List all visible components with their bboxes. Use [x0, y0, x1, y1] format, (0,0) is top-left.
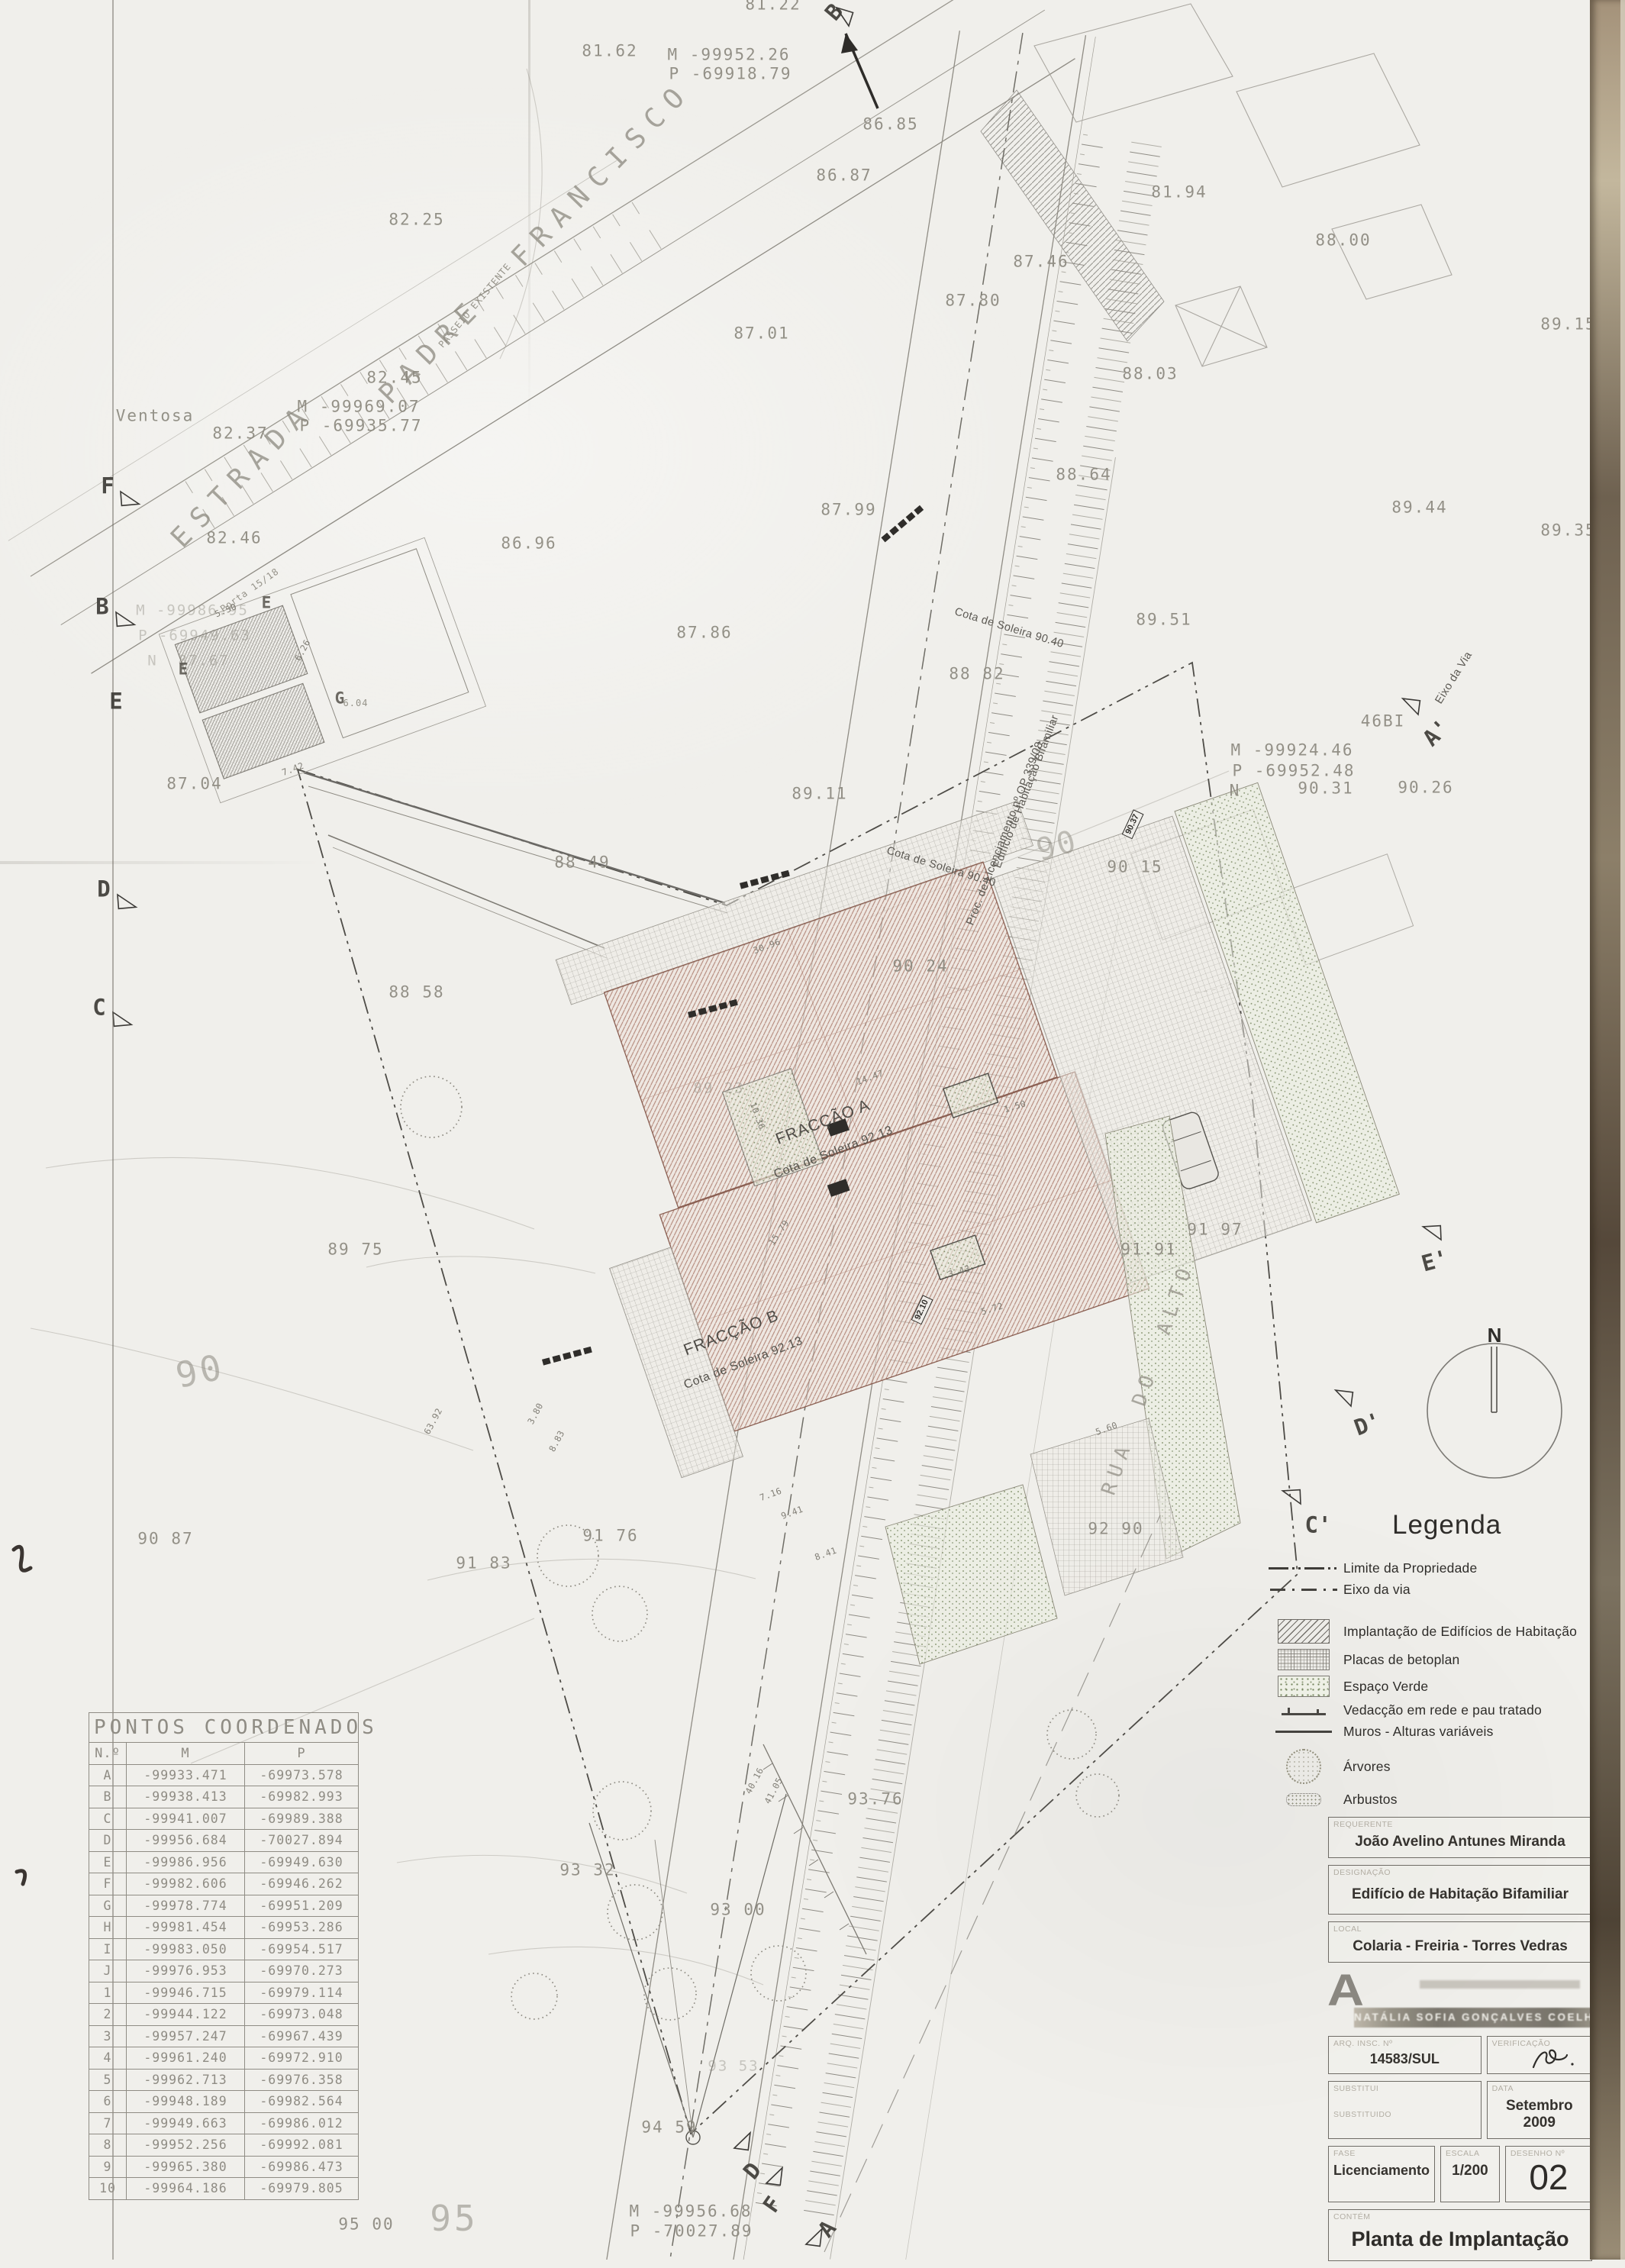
table-cell: 5: [89, 2069, 127, 2091]
table-cell: -69953.286: [245, 1917, 359, 1939]
designacao-value: Edifício de Habitação Bifamiliar: [1333, 1877, 1587, 1909]
plan-label: 89.51: [1136, 612, 1191, 628]
field-requerente: REQUERENTE João Avelino Antunes Miranda: [1328, 1817, 1592, 1858]
plan-label: 90.31: [1298, 781, 1353, 797]
table-row: A-99933.471-69973.578: [89, 1764, 359, 1786]
legend-item: Placas de betoplan: [1264, 1649, 1623, 1670]
desenho-value: 02: [1511, 2158, 1587, 2197]
table-row: 9-99965.380-69986.473: [89, 2156, 359, 2178]
architect-name-banner: NATÁLIA SOFIA GONÇALVES COELHO: [1354, 2008, 1592, 2028]
field-substitui: SUBSTITUI SUBSTITUIDO: [1328, 2081, 1482, 2139]
data-value: Setembro 2009: [1492, 2093, 1587, 2134]
wall-line: [304, 773, 725, 903]
arvores-symbol: [1264, 1749, 1343, 1784]
table-cell: -69979.114: [245, 1982, 359, 2004]
table-row: 3-99957.247-69967.439: [89, 2025, 359, 2047]
plan-label: 87.01: [734, 326, 789, 342]
legend: Legenda Limite da PropriedadeEixo da via…: [1264, 1510, 1623, 1815]
legend-item: Limite da Propriedade: [1264, 1560, 1623, 1576]
plan-label: P -70027.89: [630, 2224, 753, 2240]
compass-north-label: N: [1488, 1325, 1502, 1345]
table-row: F-99982.606-69946.262: [89, 1873, 359, 1895]
plan-label: 82.46: [206, 531, 262, 547]
plan-label: 88 82: [949, 666, 1004, 682]
plan-label: P -69949.63: [138, 629, 251, 644]
table-cell: -99952.256: [127, 2134, 245, 2157]
table-row: G-99978.774-69951.209: [89, 1895, 359, 1917]
plan-label: M -99952.26: [667, 47, 790, 63]
blurred-address-line: [1420, 1980, 1580, 1989]
scanned-site-plan-sheet: { "plan": { "compass": {"north": "N"}, "…: [0, 0, 1625, 2260]
plan-label: 93 53: [708, 2060, 759, 2074]
plan-label: 88.03: [1122, 366, 1178, 382]
plan-label: 46BI: [1361, 714, 1406, 730]
plan-label: M -99924.46: [1230, 743, 1353, 759]
plan-label: 89.35: [1540, 523, 1596, 539]
table-cell: A: [89, 1764, 127, 1786]
table-cell: -99961.240: [127, 2047, 245, 2070]
plan-label: E: [179, 662, 189, 678]
table-cell: -99978.774: [127, 1895, 245, 1917]
plan-label: 89.11: [792, 786, 847, 802]
table-cell: -99946.715: [127, 1982, 245, 2004]
local-value: Colaria - Freiria - Torres Vedras: [1333, 1934, 1587, 1957]
plan-label: 93 32: [559, 1863, 615, 1879]
table-cell: 3: [89, 2025, 127, 2047]
field-data: DATA Setembro 2009: [1487, 2081, 1592, 2139]
implantacao-symbol: [1264, 1619, 1343, 1644]
table-cell: J: [89, 1960, 127, 1982]
requerente-value: João Avelino Antunes Miranda: [1333, 1829, 1587, 1853]
table-cell: -69992.081: [245, 2134, 359, 2157]
plan-label: 91 97: [1187, 1222, 1243, 1238]
plan-label: 86.85: [862, 117, 918, 133]
table-cell: -69976.358: [245, 2069, 359, 2091]
table-cell: 6: [89, 2091, 127, 2113]
table-cell: B: [89, 1786, 127, 1808]
paper-crease: [0, 861, 321, 864]
table-row: 2-99944.122-69973.048: [89, 2004, 359, 2026]
table-cell: -69951.209: [245, 1895, 359, 1917]
plan-label: 90 24: [892, 959, 948, 975]
plan-label: P -69935.77: [299, 418, 422, 434]
table-cell: 8: [89, 2134, 127, 2157]
table-cell: D: [89, 1830, 127, 1852]
legend-item-label: Placas de betoplan: [1343, 1652, 1459, 1668]
field-verificacao: VERIFICAÇÃO: [1487, 2036, 1592, 2074]
table-cell: -99938.413: [127, 1786, 245, 1808]
legend-item-label: Implantação de Edifícios de Habitação: [1343, 1624, 1577, 1640]
table-row: 1-99946.715-69979.114: [89, 1982, 359, 2004]
plan-label: 87.99: [821, 502, 876, 518]
legend-item-label: Espaço Verde: [1343, 1679, 1428, 1695]
plan-label: 82.25: [389, 212, 444, 228]
legend-item: Árvores: [1264, 1749, 1623, 1784]
legend-items: Limite da PropriedadeEixo da viaImplanta…: [1264, 1560, 1623, 1809]
table-row: J-99976.953-69970.273: [89, 1960, 359, 1982]
plan-label: 87.80: [945, 293, 1001, 309]
plan-label: B: [95, 596, 108, 618]
table-cell: -69972.910: [245, 2047, 359, 2070]
plan-label: 86.87: [816, 168, 872, 184]
plan-label: P -69918.79: [669, 66, 792, 82]
table-cell: E: [89, 1851, 127, 1873]
plan-label: E: [262, 595, 272, 611]
field-escala: ESCALA 1/200: [1440, 2146, 1500, 2202]
plan-label: E': [1419, 1247, 1450, 1275]
plan-label: N: [1230, 783, 1241, 799]
scan-edge-highlight: [1620, 0, 1625, 2260]
table-row: C-99941.007-69989.388: [89, 1808, 359, 1830]
plan-label: 81.22: [745, 0, 801, 13]
vedacao-symbol: [1264, 1706, 1343, 1715]
table-row: 8-99952.256-69992.081: [89, 2134, 359, 2157]
plan-label: 93 00: [710, 1902, 766, 1918]
legend-title: Legenda: [1392, 1510, 1623, 1540]
legend-item: Implantação de Edifícios de Habitação: [1264, 1619, 1623, 1644]
coordinates-table: PONTOS COORDENADOS N.º M P A-99933.471-6…: [89, 1712, 359, 2200]
plan-label: N 87.67: [147, 654, 230, 669]
legend-item: Espaço Verde: [1264, 1676, 1623, 1697]
plan-label: C: [92, 997, 105, 1019]
legend-item: Vedacção em rede e pau tratado: [1264, 1702, 1623, 1718]
escala-value: 1/200: [1446, 2158, 1494, 2182]
contem-value: Planta de Implantação: [1333, 2221, 1587, 2256]
plan-label: 90 15: [1107, 860, 1162, 876]
table-row: B-99938.413-69982.993: [89, 1786, 359, 1808]
table-cell: 4: [89, 2047, 127, 2070]
table-cell: -69946.262: [245, 1873, 359, 1895]
legend-item-label: Muros - Alturas variáveis: [1343, 1724, 1494, 1740]
signature: [1529, 2046, 1578, 2073]
table-header-row: N.º M P: [89, 1743, 359, 1765]
north-compass: [1427, 1344, 1562, 1478]
table-row: 10-99964.186-69979.805: [89, 2178, 359, 2200]
table-row: E-99986.956-69949.630: [89, 1851, 359, 1873]
plan-label: E: [109, 691, 122, 713]
plan-label: 81.62: [582, 44, 637, 60]
plan-label: 88 49: [554, 855, 610, 871]
table-row: 7-99949.663-69986.012: [89, 2112, 359, 2134]
pen-arrow: [841, 34, 878, 108]
table-cell: -69970.273: [245, 1960, 359, 1982]
table-cell: -99957.247: [127, 2025, 245, 2047]
table-cell: -99956.684: [127, 1830, 245, 1852]
plan-label: 90.26: [1398, 780, 1453, 796]
table-cell: -99962.713: [127, 2069, 245, 2091]
plan-label: 90 87: [137, 1531, 193, 1547]
field-arq-insc: ARQ. INSC. Nº 14583/SUL: [1328, 2036, 1482, 2074]
table-cell: -99983.050: [127, 1938, 245, 1960]
table-cell: -69982.993: [245, 1786, 359, 1808]
field-designacao: DESIGNAÇÃO Edifício de Habitação Bifamil…: [1328, 1865, 1592, 1915]
table-cell: 1: [89, 1982, 127, 2004]
plan-label: 91 83: [456, 1556, 511, 1572]
table-cell: F: [89, 1873, 127, 1895]
table-cell: -70027.894: [245, 1830, 359, 1852]
legend-item: Eixo da via: [1264, 1582, 1623, 1598]
plan-label: 86.96: [501, 536, 556, 552]
muros-symbol: [1264, 1731, 1343, 1734]
legend-item: Muros - Alturas variáveis: [1264, 1724, 1623, 1740]
legend-item-label: Árvores: [1343, 1759, 1391, 1775]
plan-label: 6.04: [343, 698, 369, 708]
plan-label: 95 00: [338, 2217, 394, 2233]
table-row: D-99956.684-70027.894: [89, 1830, 359, 1852]
field-local: LOCAL Colaria - Freiria - Torres Vedras: [1328, 1921, 1592, 1963]
plan-label: 93.76: [847, 1792, 903, 1808]
arbustos-symbol: [1264, 1793, 1343, 1806]
plan-label: M -99956.68: [629, 2204, 752, 2220]
legend-item-label: Limite da Propriedade: [1343, 1560, 1477, 1576]
table-cell: -99976.953: [127, 1960, 245, 1982]
table-cell: -69982.564: [245, 2091, 359, 2113]
scan-artifacts: [14, 1547, 31, 1884]
architect-logo: A NATÁLIA SOFIA GONÇALVES COELHO: [1328, 1970, 1592, 2029]
legend-item-label: Arbustos: [1343, 1792, 1398, 1808]
plan-label: 87.46: [1013, 254, 1069, 270]
plan-label: D: [97, 879, 110, 901]
table-cell: -99982.606: [127, 1873, 245, 1895]
plan-label: 88 58: [389, 985, 444, 1001]
plan-label: 95: [430, 2201, 478, 2236]
plan-label: Ventosa: [116, 408, 195, 424]
plan-label: P -69952.48: [1232, 763, 1355, 779]
plan-label: 89 75: [327, 1242, 383, 1258]
plan-label: 94 59: [641, 2120, 697, 2136]
table-cell: G: [89, 1895, 127, 1917]
plan-label: 91 76: [582, 1528, 638, 1544]
plan-label: 88.64: [1056, 467, 1111, 483]
field-desenho: DESENHO Nº 02: [1505, 2146, 1592, 2202]
table-cell: -69973.048: [245, 2004, 359, 2026]
plan-label: 87.04: [166, 776, 222, 792]
arq-insc-value: 14583/SUL: [1333, 2048, 1476, 2069]
table-cell: -99933.471: [127, 1764, 245, 1786]
plan-label: 88.00: [1315, 233, 1371, 249]
table-cell: -69989.388: [245, 1808, 359, 1830]
table-cell: I: [89, 1938, 127, 1960]
stairs-detail: [159, 537, 485, 802]
plan-label: 89.15: [1540, 317, 1596, 333]
table-cell: -69986.473: [245, 2156, 359, 2178]
table-row: 6-99948.189-69982.564: [89, 2091, 359, 2113]
table-cell: -99965.380: [127, 2156, 245, 2178]
table-cell: 7: [89, 2112, 127, 2134]
table-cell: -99948.189: [127, 2091, 245, 2113]
table-row: I-99983.050-69954.517: [89, 1938, 359, 1960]
col-header-p: P: [245, 1743, 359, 1765]
wall-line: [308, 786, 727, 913]
table-cell: -99944.122: [127, 2004, 245, 2026]
legend-item: Arbustos: [1264, 1789, 1623, 1809]
table-cell: -69986.012: [245, 2112, 359, 2134]
legend-item-label: Vedacção em rede e pau tratado: [1343, 1702, 1542, 1718]
title-block: REQUERENTE João Avelino Antunes Miranda …: [1328, 1817, 1592, 2268]
plan-label: 91.91: [1120, 1242, 1176, 1258]
table-row: 4-99961.240-69972.910: [89, 2047, 359, 2070]
table-cell: -69954.517: [245, 1938, 359, 1960]
fase-value: Licenciamento: [1333, 2158, 1430, 2181]
col-header-m: M: [127, 1743, 245, 1765]
plan-label: F: [101, 476, 114, 498]
table-cell: -69949.630: [245, 1851, 359, 1873]
legend-item-label: Eixo da via: [1343, 1582, 1411, 1598]
col-header-n: N.º: [89, 1743, 127, 1765]
table-cell: -69967.439: [245, 2025, 359, 2047]
table-cell: 9: [89, 2156, 127, 2178]
field-contem: CONTÉM Planta de Implantação: [1328, 2209, 1592, 2261]
betoplan-symbol: [1264, 1649, 1343, 1670]
table-cell: -99986.956: [127, 1851, 245, 1873]
table-cell: -69979.805: [245, 2178, 359, 2200]
plan-label: 89 23: [693, 1082, 744, 1096]
table-row: 5-99962.713-69976.358: [89, 2069, 359, 2091]
table-row: H-99981.454-69953.286: [89, 1917, 359, 1939]
table-cell: -99964.186: [127, 2178, 245, 2200]
table-cell: -99981.454: [127, 1917, 245, 1939]
table-cell: -99941.007: [127, 1808, 245, 1830]
table-cell: C: [89, 1808, 127, 1830]
table-cell: 2: [89, 2004, 127, 2026]
coordinates-table-title: PONTOS COORDENADOS: [89, 1712, 359, 1742]
plan-label: 89.44: [1391, 500, 1447, 516]
plan-label: 92 90: [1088, 1521, 1143, 1537]
plan-label: 90: [172, 1349, 227, 1393]
table-cell: -69973.578: [245, 1764, 359, 1786]
verde-symbol: [1264, 1676, 1343, 1697]
table-cell: H: [89, 1917, 127, 1939]
road-estrada: [8, 0, 1075, 673]
table-cell: -99949.663: [127, 2112, 245, 2134]
limite-symbol: [1264, 1567, 1343, 1570]
plan-label: 87.86: [676, 625, 732, 641]
field-fase: FASE Licenciamento: [1328, 2146, 1435, 2202]
plan-label: 81.94: [1151, 185, 1207, 201]
table-cell: 10: [89, 2178, 127, 2200]
paper-crease: [528, 0, 530, 427]
eixo-symbol: [1264, 1589, 1343, 1591]
